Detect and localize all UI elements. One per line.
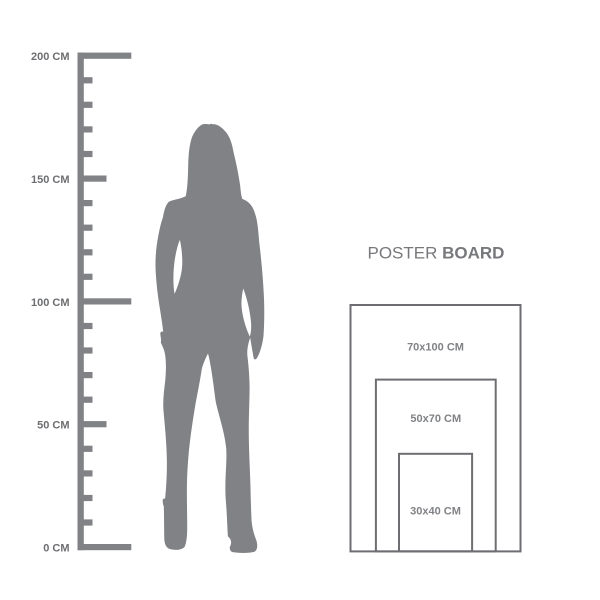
svg-text:70x100 CM: 70x100 CM (407, 341, 464, 353)
svg-text:0 CM: 0 CM (43, 542, 69, 554)
svg-text:50 CM: 50 CM (37, 420, 69, 432)
svg-text:30x40 CM: 30x40 CM (410, 506, 461, 518)
svg-text:100 CM: 100 CM (31, 297, 70, 309)
svg-text:50x70 CM: 50x70 CM (410, 413, 461, 425)
svg-text:POSTER BOARD: POSTER BOARD (368, 243, 505, 262)
svg-text:150 CM: 150 CM (31, 174, 70, 186)
svg-text:200 CM: 200 CM (31, 51, 70, 63)
